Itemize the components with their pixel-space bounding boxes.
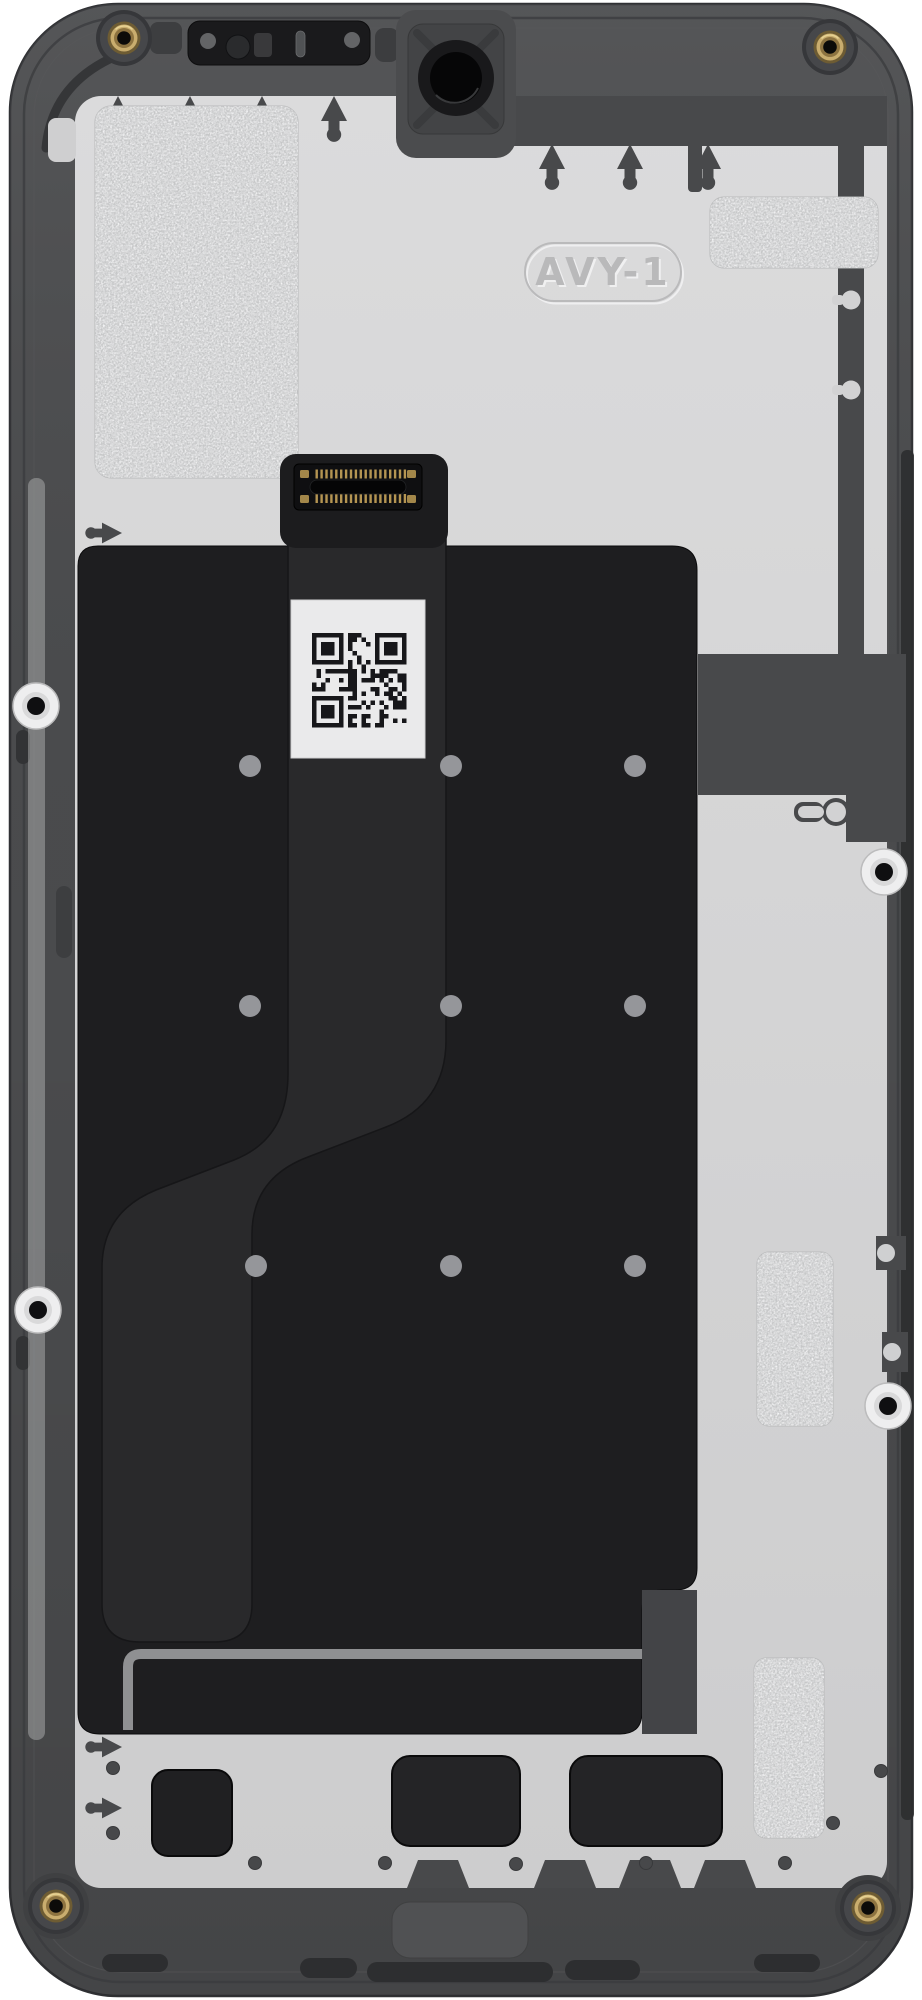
earpiece-speaker-module bbox=[188, 21, 370, 65]
screw-hole bbox=[200, 33, 216, 49]
left-edge-slot bbox=[16, 1336, 30, 1370]
connector-pad bbox=[300, 470, 309, 478]
connector-pad bbox=[407, 470, 416, 478]
board-connector bbox=[280, 454, 448, 548]
embossed-label-text: AVY-1 bbox=[535, 250, 670, 294]
top-divider-strip bbox=[688, 100, 702, 192]
screw-hole bbox=[344, 32, 360, 48]
sensor-window bbox=[150, 22, 182, 54]
frame-step-lower-right bbox=[642, 1590, 697, 1734]
left-edge-groove bbox=[56, 886, 72, 958]
plate-side-tab bbox=[48, 118, 76, 162]
alignment-boss bbox=[861, 849, 907, 895]
screw-insert-bottom-left bbox=[28, 1878, 84, 1934]
adhesive-patch-top-left bbox=[95, 106, 298, 478]
screw-insert-top-left bbox=[96, 10, 152, 66]
adhesive-patch-right-mid bbox=[757, 1252, 833, 1426]
mic-slot bbox=[296, 31, 305, 57]
adhesive-patch-top-right bbox=[710, 197, 878, 268]
connector-socket bbox=[310, 480, 406, 494]
frame-recess bbox=[375, 28, 399, 62]
sensor-lens bbox=[226, 35, 250, 59]
product-photo: AVY-1 AVY-1 bbox=[0, 0, 922, 2000]
left-rail bbox=[28, 478, 45, 1740]
alignment-boss bbox=[865, 1383, 911, 1429]
screw-insert-bottom-right bbox=[840, 1880, 896, 1936]
bottom-cutout-small bbox=[152, 1770, 232, 1856]
speaker-block bbox=[254, 33, 272, 57]
screw-insert-top-right bbox=[802, 19, 858, 75]
alignment-boss bbox=[13, 683, 59, 729]
alignment-boss bbox=[15, 1287, 61, 1333]
qr-sticker bbox=[291, 600, 425, 758]
connector-pad bbox=[300, 495, 309, 503]
bottom-frame-pad bbox=[392, 1902, 528, 1958]
left-edge-slot bbox=[16, 730, 30, 764]
bottom-cutout-mid bbox=[392, 1756, 520, 1846]
embossed-mold-mark: AVY-1 AVY-1 bbox=[525, 243, 683, 304]
bottom-cutout-right bbox=[570, 1756, 722, 1846]
adhesive-patch-right-bottom bbox=[754, 1658, 824, 1838]
front-camera bbox=[396, 10, 516, 158]
connector-pad bbox=[407, 495, 416, 503]
